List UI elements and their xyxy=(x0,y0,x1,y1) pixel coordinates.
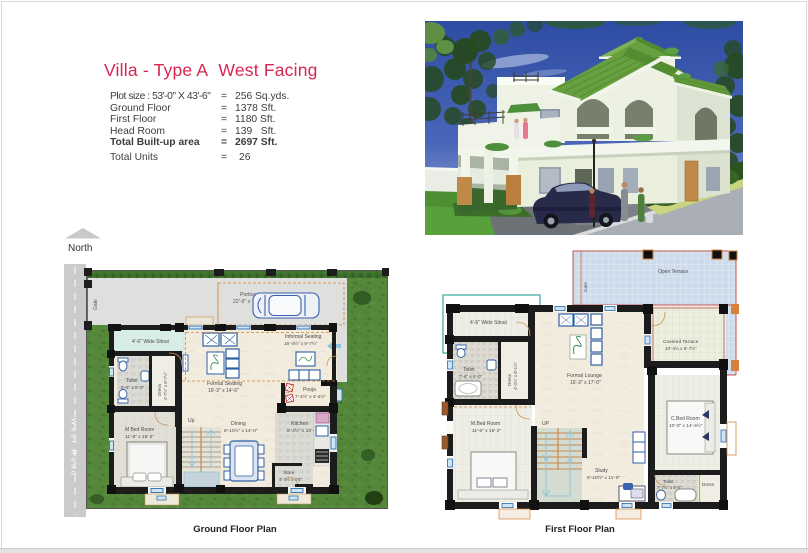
svg-text:Gate: Gate xyxy=(583,282,588,292)
svg-text:Formal Seating: Formal Seating xyxy=(207,381,242,387)
svg-text:C.Bed Room: C.Bed Room xyxy=(671,416,700,422)
svg-text:7'-4½" x 4'-4½": 7'-4½" x 4'-4½" xyxy=(295,393,326,399)
svg-text:8'-10½" x 11'-0": 8'-10½" x 11'-0" xyxy=(587,474,620,481)
svg-text:16'-3" x 14'-6": 16'-3" x 14'-6" xyxy=(208,388,239,394)
svg-text:10'-4½ x 9'-7½": 10'-4½ x 9'-7½" xyxy=(665,345,697,351)
svg-text:West Road: West Road xyxy=(70,418,79,477)
svg-text:Toilet: Toilet xyxy=(126,378,138,384)
svg-text:Dining: Dining xyxy=(231,421,246,427)
svg-text:Informal Seating: Informal Seating xyxy=(285,334,322,340)
svg-text:Gate: Gate xyxy=(93,299,99,310)
svg-text:16'-3" x 17'-0": 16'-3" x 17'-0" xyxy=(570,380,601,386)
svg-text:4'-6" Wide Sitout: 4'-6" Wide Sitout xyxy=(132,339,170,345)
svg-text:Pooja: Pooja xyxy=(303,387,316,393)
svg-text:4'-6" Wide Sitout: 4'-6" Wide Sitout xyxy=(470,320,508,326)
svg-text:Toilet: Toilet xyxy=(463,367,475,373)
svg-text:Up: Up xyxy=(188,418,195,424)
svg-text:Store: Store xyxy=(283,470,295,476)
svg-text:Study: Study xyxy=(595,468,608,474)
svg-text:Dress: Dress xyxy=(157,383,162,396)
svg-text:Dress: Dress xyxy=(507,373,512,386)
svg-text:16'-4½" x 9'-7½": 16'-4½" x 9'-7½" xyxy=(284,340,318,346)
svg-text:7'-6" x 6'-0": 7'-6" x 6'-0" xyxy=(459,374,483,379)
svg-text:11'-6" x 15'-2": 11'-6" x 15'-2" xyxy=(472,428,501,434)
svg-text:Open Terrace: Open Terrace xyxy=(658,269,688,275)
svg-text:M.Bed Room: M.Bed Room xyxy=(471,421,500,427)
svg-text:Kitchen: Kitchen xyxy=(291,421,308,427)
svg-text:11'-6" x 15'-2": 11'-6" x 15'-2" xyxy=(125,434,154,440)
svg-text:4'-7½" x 8'-7½": 4'-7½" x 8'-7½" xyxy=(163,371,168,400)
svg-text:UP: UP xyxy=(542,421,550,427)
svg-text:M Bed Room: M Bed Room xyxy=(125,427,154,433)
svg-text:6'-6" x 8'-0": 6'-6" x 8'-0" xyxy=(121,385,145,390)
svg-text:8'-4½" x 14'-0": 8'-4½" x 14'-0" xyxy=(287,427,318,434)
svg-text:10'-0" x 14'-4½": 10'-0" x 14'-4½" xyxy=(669,422,703,429)
svg-text:Covered Terrace: Covered Terrace xyxy=(663,339,699,345)
svg-text:8'-10½" x 14'-0": 8'-10½" x 14'-0" xyxy=(224,427,258,434)
svg-text:4'-4½ x 4'6": 4'-4½ x 4'6" xyxy=(279,477,302,482)
svg-text:4'-4½" x 8'-1½": 4'-4½" x 8'-1½" xyxy=(513,361,518,390)
svg-text:Formal Lounge: Formal Lounge xyxy=(567,373,602,379)
svg-text:Dress: Dress xyxy=(702,482,715,487)
svg-text:Toilet: Toilet xyxy=(663,479,674,484)
svg-text:North: North xyxy=(68,243,92,254)
